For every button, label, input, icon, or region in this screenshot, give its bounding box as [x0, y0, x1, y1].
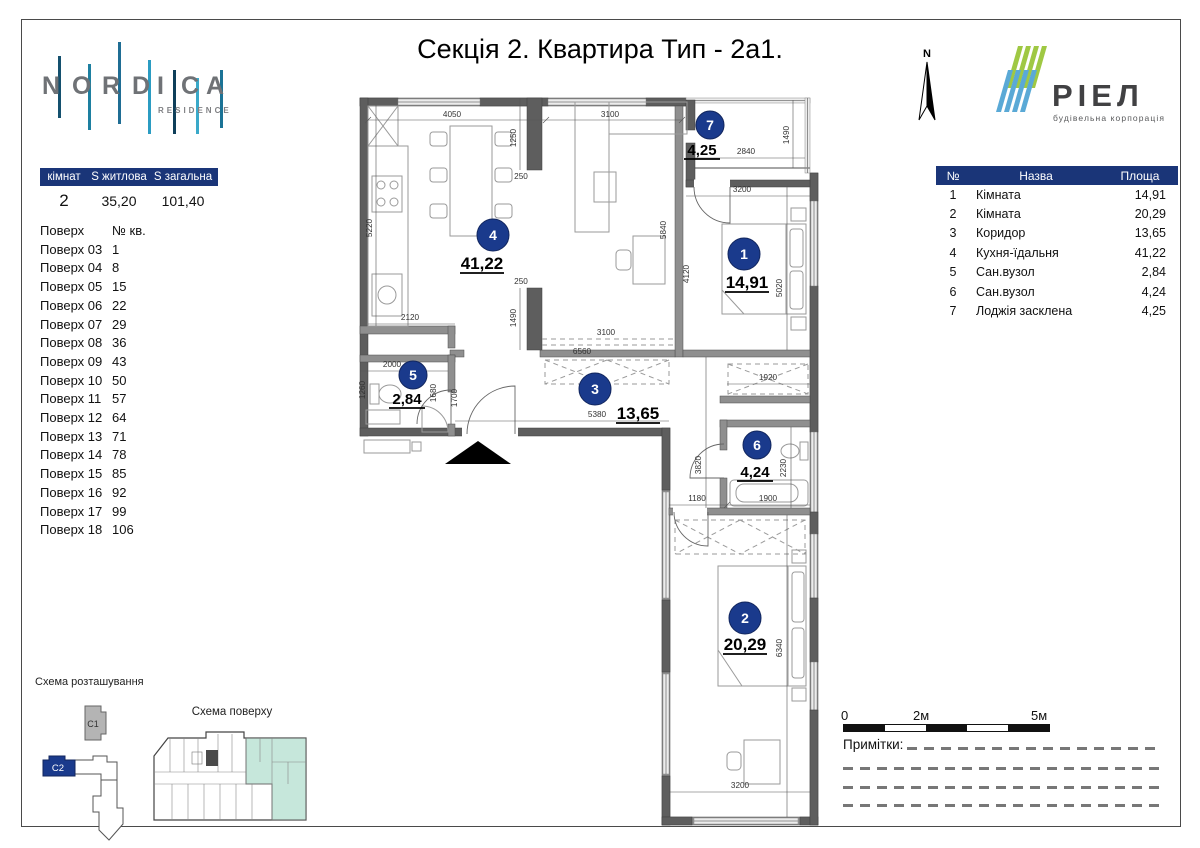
floor-label: Поверх 13: [40, 428, 112, 447]
room-name: Лоджія засклена: [970, 304, 1102, 318]
apartment-number: 85: [112, 465, 126, 484]
dimension-label: 1920: [759, 373, 778, 382]
floor-label: Поверх 06: [40, 297, 112, 316]
floor-row: Поверх 048: [40, 259, 146, 278]
furniture: [366, 102, 808, 784]
apartment-number: 106: [112, 521, 134, 540]
floor-label: Поверх 10: [40, 372, 112, 391]
apartment-number: 43: [112, 353, 126, 372]
riel-logo: РІЕЛ будівельна корпорація: [996, 40, 1178, 132]
summary-value-cell: 2: [40, 191, 88, 211]
rooms-table-body: 1Кімната14,912Кімната20,293Коридор13,654…: [936, 185, 1178, 321]
dimension-label: 1250: [509, 128, 518, 147]
entrance-arrow-icon: [445, 441, 511, 464]
dimension-lines: [360, 98, 810, 817]
svg-text:41,22: 41,22: [461, 254, 504, 273]
riel-subtitle: будівельна корпорація: [1053, 113, 1165, 123]
floor-row: Поверх 1585: [40, 465, 146, 484]
room-name: Кімната: [970, 188, 1102, 202]
floor-row: Поверх 1050: [40, 372, 146, 391]
room-row: 2Кімната20,29: [936, 204, 1178, 223]
floor-row: Поверх 1371: [40, 428, 146, 447]
nordica-letter: N: [42, 72, 60, 101]
room-label-2: 220,29: [723, 602, 767, 654]
floor-scheme-map: [148, 722, 316, 826]
riel-name: РІЕЛ: [1052, 78, 1144, 113]
dimension-label: 1260: [358, 380, 367, 399]
summary-value-cell: 35,20: [88, 193, 150, 209]
notes-line: [843, 786, 1161, 789]
apartment-number: 78: [112, 446, 126, 465]
room-name: Кухня-їдальня: [970, 246, 1102, 260]
dimension-label: 5380: [588, 410, 607, 419]
nordica-logo: NORDICA RESIDENCE: [42, 42, 252, 134]
nordica-letter: O: [72, 72, 91, 101]
svg-text:4: 4: [489, 227, 497, 243]
summary-table-values: 235,20101,40: [40, 191, 218, 211]
floor-row: Поверх 0622: [40, 297, 146, 316]
svg-text:2,84: 2,84: [392, 391, 422, 408]
floor-row: Поверх 0943: [40, 353, 146, 372]
compass-label: N: [923, 48, 931, 60]
dimension-label: 6560: [573, 347, 592, 356]
dimension-label: 5020: [775, 278, 784, 297]
floor-label: Поверх 15: [40, 465, 112, 484]
dimension-label: 3200: [731, 781, 750, 790]
floor-row: Поверх 0836: [40, 334, 146, 353]
floor-label: Поверх 03: [40, 241, 112, 260]
room-label-4: 441,22: [460, 219, 509, 273]
svg-text:4,25: 4,25: [687, 142, 716, 159]
floor-scheme: Схема поверху: [148, 706, 316, 831]
nordica-letter: A: [206, 72, 224, 101]
scale-label: 2м: [913, 708, 929, 723]
dimension-label: 250: [514, 277, 528, 286]
svg-text:13,65: 13,65: [617, 404, 660, 423]
dimension-label: 3200: [733, 185, 752, 194]
floor-label: Поверх 12: [40, 409, 112, 428]
scale-bar: 0 2м 5м: [843, 708, 1051, 732]
floor-row: Поверх 18106: [40, 521, 146, 540]
svg-text:6: 6: [753, 437, 761, 453]
room-label-6: 64,24: [737, 431, 773, 481]
floor-row: Поверх 031: [40, 241, 146, 260]
rooms-header-cell: Площа: [1102, 169, 1178, 183]
nordica-letter: C: [181, 72, 199, 101]
apartment-number: 64: [112, 409, 126, 428]
room-area: 14,91: [1102, 188, 1178, 202]
floor-label: Поверх 07: [40, 316, 112, 335]
building-c2-label: C2: [52, 763, 64, 774]
room-row: 4Кухня-їдальня41,22: [936, 243, 1178, 262]
apartment-number: № кв.: [112, 222, 146, 241]
room-row: 7Лоджія засклена4,25: [936, 301, 1178, 320]
floorplan-sheet: NORDICA RESIDENCE Секція 2. Квартира Тип…: [0, 0, 1200, 848]
dimension-label: 6340: [775, 638, 784, 657]
plan-room-labels: 114,91220,29313,65441,2252,8464,2474,25: [389, 111, 773, 654]
floor-scheme-title: Схема поверху: [148, 706, 316, 718]
room-name: Коридор: [970, 226, 1102, 240]
scale-label: 5м: [1031, 708, 1047, 723]
dimension-label: 1900: [759, 494, 778, 503]
nordica-letter: D: [132, 72, 150, 101]
room-area: 4,24: [1102, 285, 1178, 299]
apartment-number: 36: [112, 334, 126, 353]
dimension-label: 3100: [597, 328, 616, 337]
notes-line: [907, 747, 1161, 750]
apartment-number: 22: [112, 297, 126, 316]
floor-label: Поверх 05: [40, 278, 112, 297]
room-number: 4: [936, 246, 970, 260]
dimension-label: 1700: [450, 388, 459, 407]
floor-row: Поверх 0515: [40, 278, 146, 297]
dimension-label: 1490: [509, 308, 518, 327]
room-row: 1Кімната14,91: [936, 185, 1178, 204]
building-c1-label: C1: [87, 719, 99, 729]
apartment-number: 15: [112, 278, 126, 297]
floor-label: Поверх 08: [40, 334, 112, 353]
logo-bar-icon: [173, 70, 176, 134]
floor-label: Поверх 14: [40, 446, 112, 465]
north-arrow-icon: N: [912, 44, 948, 128]
dimension-label: 2230: [779, 458, 788, 477]
floor-row: Поверх 1692: [40, 484, 146, 503]
svg-text:14,91: 14,91: [726, 273, 769, 292]
exterior-walls: [360, 98, 818, 825]
location-scheme-map: C1 C2: [35, 692, 165, 842]
room-number: 6: [936, 285, 970, 299]
floors-list: Поверх№ кв.Поверх 031Поверх 048Поверх 05…: [40, 222, 146, 540]
rooms-header-cell: №: [936, 169, 970, 183]
apartment-floorplan: 4050310028401490125025032005220584041205…: [350, 88, 840, 833]
nordica-letter: I: [157, 72, 164, 101]
floor-label: Поверх 18: [40, 521, 112, 540]
riel-stripes-icon: [996, 46, 1047, 112]
floor-row: Поверх 1264: [40, 409, 146, 428]
apartment-number: 57: [112, 390, 126, 409]
summary-table-header: кімнатS житловаS загальна: [40, 168, 218, 186]
dimension-label: 4120: [682, 264, 691, 283]
room-number: 7: [936, 304, 970, 318]
room-number: 2: [936, 207, 970, 221]
room-number: 5: [936, 265, 970, 279]
svg-text:20,29: 20,29: [724, 635, 767, 654]
room-number: 3: [936, 226, 970, 240]
svg-text:4,24: 4,24: [740, 464, 770, 481]
dimension-label: 2840: [737, 147, 756, 156]
svg-text:5: 5: [409, 367, 417, 383]
floor-label: Поверх 11: [40, 390, 112, 409]
room-name: Кімната: [970, 207, 1102, 221]
dimension-label: 2120: [401, 313, 420, 322]
dimension-label: 1490: [782, 125, 791, 144]
room-area: 20,29: [1102, 207, 1178, 221]
location-scheme-title: Схема розташування: [35, 676, 175, 688]
dimension-label: 1180: [688, 494, 706, 503]
apartment-number: 92: [112, 484, 126, 503]
floor-row: Поверх 1157: [40, 390, 146, 409]
rooms-table-header: №НазваПлоща: [936, 166, 1178, 185]
apartment-number: 8: [112, 259, 119, 278]
room-label-1: 114,91: [725, 238, 769, 292]
room-area: 2,84: [1102, 265, 1178, 279]
room-name: Сан.вузол: [970, 285, 1102, 299]
apartment-number: 1: [112, 241, 119, 260]
apartment-number: 29: [112, 316, 126, 335]
dimension-label: 3820: [694, 455, 703, 474]
notes-block: Примітки:: [843, 737, 1161, 817]
scale-bar-segments: [843, 724, 1050, 732]
room-row: 6Сан.вузол4,24: [936, 282, 1178, 301]
dimension-label: 4050: [443, 110, 462, 119]
dimension-label: 5840: [659, 220, 668, 239]
dimension-label: 3100: [601, 110, 620, 119]
room-number: 1: [936, 188, 970, 202]
floor-label: Поверх 04: [40, 259, 112, 278]
svg-text:1: 1: [740, 246, 748, 262]
dimension-label: 2000: [383, 360, 402, 369]
dimension-label: 1680: [429, 383, 438, 402]
apartment-number: 50: [112, 372, 126, 391]
floor-row: Поверх 0729: [40, 316, 146, 335]
floor-row: Поверх 1799: [40, 503, 146, 522]
room-area: 4,25: [1102, 304, 1178, 318]
nordica-subtitle: RESIDENCE: [158, 106, 232, 115]
svg-text:2: 2: [741, 610, 749, 626]
floor-label: Поверх: [40, 222, 112, 241]
floor-label: Поверх 16: [40, 484, 112, 503]
room-name: Сан.вузол: [970, 265, 1102, 279]
summary-header-cell: S загальна: [150, 171, 216, 183]
apartment-number: 99: [112, 503, 126, 522]
notes-line: [843, 804, 1161, 807]
rooms-table: №НазваПлоща 1Кімната14,912Кімната20,293К…: [936, 166, 1178, 321]
room-area: 41,22: [1102, 246, 1178, 260]
nordica-letter: R: [102, 72, 120, 101]
floors-list-header: Поверх№ кв.: [40, 222, 146, 241]
apartment-number: 71: [112, 428, 126, 447]
svg-text:7: 7: [706, 117, 714, 133]
floor-label: Поверх 17: [40, 503, 112, 522]
summary-header-cell: кімнат: [40, 171, 88, 183]
summary-table: кімнатS житловаS загальна 235,20101,40: [40, 168, 218, 211]
dimension-label: 250: [514, 172, 528, 181]
room-row: 5Сан.вузол2,84: [936, 263, 1178, 282]
floor-row: Поверх 1478: [40, 446, 146, 465]
interior-walls: [360, 98, 810, 516]
summary-header-cell: S житлова: [88, 171, 150, 183]
page-title: Секція 2. Квартира Тип - 2а1.: [340, 34, 860, 65]
notes-line: [843, 767, 1161, 770]
floor-label: Поверх 09: [40, 353, 112, 372]
room-row: 3Коридор13,65: [936, 224, 1178, 243]
rooms-header-cell: Назва: [970, 169, 1102, 183]
room-area: 13,65: [1102, 226, 1178, 240]
summary-value-cell: 101,40: [150, 193, 216, 209]
dimension-label: 5220: [365, 218, 374, 237]
scale-label: 0: [841, 708, 848, 723]
notes-label: Примітки:: [843, 737, 903, 752]
svg-text:3: 3: [591, 381, 599, 397]
